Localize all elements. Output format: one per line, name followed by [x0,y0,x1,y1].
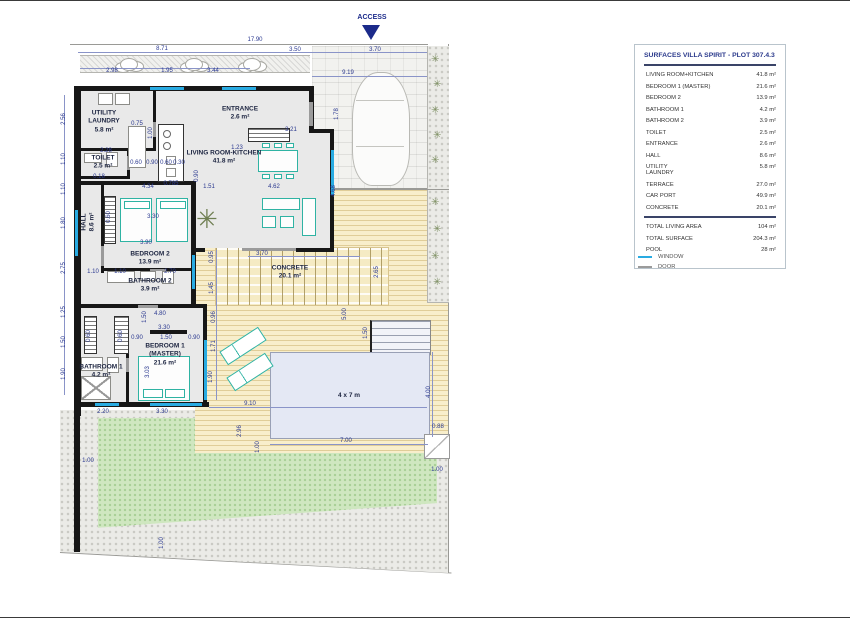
surfaces-panel: SURFACES VILLA SPIRIT - PLOT 307.4.3 LIV… [634,44,786,269]
washing-machine [98,93,113,105]
dimension-label: 1.71 [211,340,217,352]
chair [274,174,282,179]
pool-equipment-box [424,434,450,459]
legend-row-value: 5.8 m² [760,164,776,170]
access-arrow-icon [362,25,380,40]
legend-row-label: TOTAL SURFACE [646,236,693,242]
dimension-label: 1.00 [159,537,165,549]
dimension-line [64,95,65,395]
access-label: ACCESS [357,14,386,21]
legend-row-label: TERRACE [646,182,674,188]
sofa [262,198,300,210]
dimension-label: 1.78 [334,108,340,120]
plant-icon: ✳ [431,156,439,166]
pillow [160,201,186,209]
dimension-label: 5.00 [342,308,348,320]
plant-icon: ✳ [431,252,439,262]
dimension-label: 3.03 [145,366,151,378]
boundary-wall [74,416,80,552]
legend-row: TERRACE27.0 m² [646,182,776,188]
window-symbol-icon [638,256,652,258]
wall [296,248,334,252]
legend-row-label: CAR PORT [646,193,676,199]
room-label-bedroom-1-master: BEDROOM 1 (MASTER) 21.6 m² [145,342,184,367]
dimension-label: 1.10 [114,269,126,275]
legend-row-label: TOILET [646,130,666,136]
legend-row: TOILET2.5 m² [646,130,776,136]
door-marker [126,358,129,372]
door-marker [101,246,104,266]
plant-icon: ✳ [431,55,439,65]
hob-icon [163,142,171,150]
legend-row-value: 20.1 m² [756,205,776,211]
armchair [262,216,276,228]
dimension-label: 0.75 [131,121,143,127]
legend-row-label: LIVING ROOM+KITCHEN [646,72,713,78]
plant-icon: ✳ [433,80,441,90]
legend-row: BATHROOM 14.2 m² [646,107,776,113]
dimension-label: 0.60 [106,211,112,223]
room-label-toilet: TOILET 2.5 m² [92,155,115,172]
dimension-line [270,444,428,445]
dimension-label: 1.80 [61,217,67,229]
room-label-hall: HALL 8.6 m² [81,213,98,232]
dimension-label: 1.51 [203,184,215,190]
divider [644,216,776,218]
dimension-label: 1.00 [82,458,94,464]
dimension-label: 0.90 [188,335,200,341]
room-label-bathroom-2: BATHROOM 2 3.9 m² [128,278,171,295]
dining-table [258,150,298,172]
legend-row: BEDROOM 1 (MASTER)21.6 m² [646,84,776,90]
legend-row-label: BEDROOM 1 (MASTER) [646,84,710,90]
bush-icon [243,58,261,71]
legend-row-value: 4.2 m² [760,107,776,113]
island-cabinet [166,168,176,177]
legend-row: LIVING ROOM+KITCHEN41.8 m² [646,72,776,78]
divider [644,64,776,66]
dimension-label: 2.75 [61,262,67,274]
legend-row-value: 2.5 m² [760,130,776,136]
room-label-utility-laundry: UTILITY LAUNDRY 5.8 m² [88,109,120,134]
legend-row-value: 204.3 m² [753,236,776,242]
dimension-label: 3.30 [158,325,170,331]
dimension-label: 0.60 [160,160,172,166]
dimension-label: 1.50 [160,335,172,341]
wall [78,86,314,91]
window-marker [222,87,256,90]
dimension-label: 9.10 [244,401,256,407]
dimension-label: 4.68 [331,185,337,197]
dimension-label: 3.70 [256,251,268,257]
bed [156,198,188,242]
window-marker [204,340,207,400]
dimension-label: 2.56 [61,113,67,125]
dimension-label: 0.785 [163,181,178,187]
door-symbol-icon [638,266,652,268]
bed [120,198,152,242]
plot-boundary-top [70,44,428,45]
door-legend-label: DOOR [658,264,675,270]
legend-row-value: 8.6 m² [760,153,776,159]
entrance-doormat [248,128,290,142]
surfaces-totals: TOTAL LIVING AREA104 m²TOTAL SURFACE204.… [644,224,776,253]
room-label-concrete: CONCRETE 20.1 m² [272,265,308,282]
window-marker [192,255,195,289]
legend-row-label: CONCRETE [646,205,679,211]
dimension-label: 2.70 [164,269,176,275]
plant-icon: ✳ [431,106,439,116]
legend-row: CAR PORT49.9 m² [646,193,776,199]
floor-plan-sheet: ✳ ✳ ✳ ✳ ✳ ✳ ✳ ✳ ✳ [0,0,850,620]
dimension-label: 2.65 [374,266,380,278]
legend-row-label: BATHROOM 2 [646,118,684,124]
dimension-label: 2.28 [100,148,112,154]
dimension-label: 0.95 [209,251,215,263]
legend-row-value: 104 m² [758,224,776,230]
car-rear-line [356,146,404,147]
legend-row-label: POOL [646,247,662,253]
car-outline [352,72,410,186]
room-label-pool-size: 4 x 7 m [338,392,360,400]
dimension-label: 1.90 [61,368,67,380]
dimension-label: 0.18 [93,174,105,180]
dimension-label: 0.60 [118,330,124,342]
legend-row-value: 27.0 m² [756,182,776,188]
legend-row: ENTRANCE2.6 m² [646,141,776,147]
legend-row-value: 49.9 m² [756,193,776,199]
dimension-label: 1.95 [161,68,173,74]
dimension-label: 3.30 [156,409,168,415]
dimension-label: 3.21 [285,127,297,133]
dimension-label: 2.98 [106,68,118,74]
dimension-label: 0.96 [211,311,217,323]
dimension-label: 1.50 [61,336,67,348]
window-legend-row: WINDOW [638,254,683,260]
planting-strip-top [427,46,449,189]
door-marker [138,305,158,308]
coffee-table [280,216,294,228]
dimension-line [209,407,427,408]
chair [286,174,294,179]
legend-row-label: HALL [646,153,661,159]
dimension-label: 0.88 [432,424,444,430]
door-legend-row: DOOR [638,264,683,270]
dimension-label: 0.90 [194,170,200,182]
pillow [124,201,150,209]
door-marker [309,102,313,126]
chair [262,174,270,179]
dimension-label: 0.90 [131,335,143,341]
dimension-label: 0.30 [173,160,185,166]
legend-row-label: ENTRANCE [646,141,678,147]
dimension-label: 0.60 [86,330,92,342]
dimension-label: 3.44 [207,68,219,74]
dimension-label: 1.45 [209,282,215,294]
dimension-label: 1.50 [363,327,369,339]
legend-row-value: 28 m² [761,247,776,253]
sink-icon [163,130,171,138]
legend-row: TOTAL SURFACE204.3 m² [646,236,776,242]
symbol-legend: WINDOW DOOR [638,254,683,274]
legend-row: UTILITY LAUNDRY5.8 m² [646,164,776,176]
bush-icon [185,58,203,71]
dimension-label: 3.70 [369,47,381,53]
window-marker [150,403,202,406]
dimension-label: 3.90 [140,240,152,246]
surfaces-rows: LIVING ROOM+KITCHEN41.8 m²BEDROOM 1 (MAS… [644,72,776,211]
chair [262,143,270,148]
window-marker [150,87,184,90]
bush-icon [120,58,138,71]
dimension-line [216,250,217,400]
legend-row-value: 21.6 m² [756,84,776,90]
legend-row-value: 13.9 m² [756,95,776,101]
dimension-label: 7.00 [340,438,352,444]
dimension-label: 4.00 [426,386,432,398]
window-marker [95,403,119,406]
legend-row: TOTAL LIVING AREA104 m² [646,224,776,230]
plant-icon: ✳ [433,225,441,235]
surfaces-panel-title: SURFACES VILLA SPIRIT - PLOT 307.4.3 [644,52,776,59]
room-label-living-room-kitchen: LIVING ROOM-KITCHEN 41.8 m² [187,150,262,167]
dimension-label: 1.10 [61,183,67,195]
dimension-label: 17.90 [247,37,262,43]
dimension-label: 1.00 [148,127,154,139]
dimension-label: 3.50 [289,47,301,53]
legend-row: POOL28 m² [646,247,776,253]
dimension-line [312,76,427,77]
window-legend-label: WINDOW [658,254,683,260]
pillow [165,389,185,398]
dimension-label: 1.10 [87,269,99,275]
legend-row-label: BATHROOM 1 [646,107,684,113]
window-marker [75,210,78,256]
legend-row-label: TOTAL LIVING AREA [646,224,702,230]
door-marker [242,248,296,251]
dimension-label: 1.00 [255,441,261,453]
wall [153,88,156,150]
plant-icon: ✳ [433,131,441,141]
dimension-label: 4.62 [268,184,280,190]
room-label-entrance: ENTRANCE 2.6 m² [222,106,258,123]
dimension-label: 1.90 [208,371,214,383]
room-label-bathroom-1: BATHROOM 1 4.2 m² [79,364,122,381]
pillow [143,389,163,398]
legend-row-label: BEDROOM 2 [646,95,681,101]
dimension-label: 4.80 [154,311,166,317]
legend-row-label: UTILITY LAUNDRY [646,164,674,176]
plant-icon: ✳ [433,278,441,288]
dimension-label: 9.19 [342,70,354,76]
legend-row-value: 2.6 m² [760,141,776,147]
chair [274,143,282,148]
dimension-label: 2.20 [97,409,109,415]
sofa [302,198,316,236]
legend-row: BATHROOM 23.9 m² [646,118,776,124]
dimension-label: 0.60 [130,160,142,166]
dimension-label: 1.25 [61,306,67,318]
legend-row: BEDROOM 213.9 m² [646,95,776,101]
dimension-label: 1.00 [431,467,443,473]
legend-row: CONCRETE20.1 m² [646,205,776,211]
dimension-label: 4.34 [142,184,154,190]
dimension-label: 3.30 [147,214,159,220]
dimension-label: 8.71 [156,46,168,52]
legend-row: HALL8.6 m² [646,153,776,159]
dryer [115,93,130,105]
dimension-label: 1.10 [61,153,67,165]
dimension-label: 1.50 [142,311,148,323]
room-label-bedroom-2: BEDROOM 2 13.9 m² [130,251,169,268]
plant-icon: ✳ [431,198,439,208]
legend-row-value: 3.9 m² [760,118,776,124]
dimension-label: 0.90 [146,160,158,166]
tree-icon: ✳ [196,206,218,232]
dimension-label: 2.96 [237,425,243,437]
car-windshield-line [356,100,404,101]
chair [286,143,294,148]
legend-row-value: 41.8 m² [756,72,776,78]
pool-steps [370,320,431,355]
